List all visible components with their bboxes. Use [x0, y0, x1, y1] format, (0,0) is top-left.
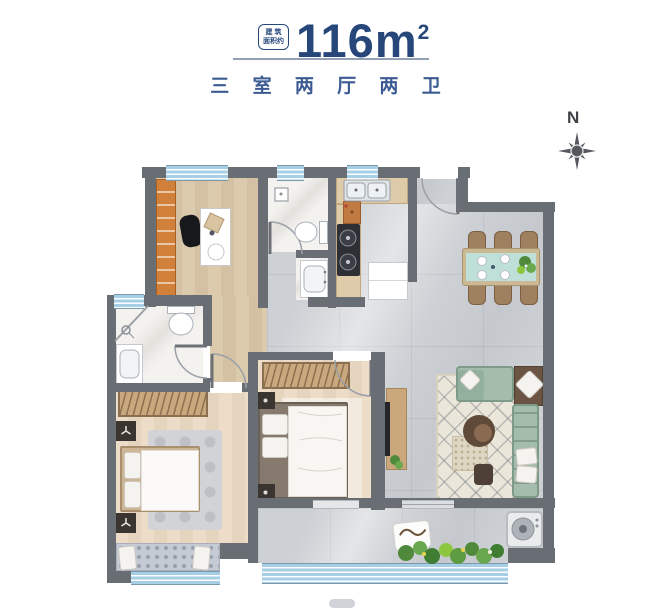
wall	[203, 295, 212, 346]
ottoman-stool	[474, 464, 493, 485]
master-nightstand	[256, 392, 275, 409]
guest-vanity	[300, 260, 328, 298]
kitchen-counter-top	[336, 177, 408, 204]
master-duvet	[288, 406, 347, 497]
armchair-pillow	[515, 447, 538, 466]
bay-pillow	[192, 545, 211, 571]
wall	[371, 352, 385, 510]
pillow	[124, 452, 141, 479]
dining-table-top	[466, 253, 536, 281]
area-badge: 建 筑 面积约	[258, 24, 289, 50]
dining-chair	[494, 283, 512, 305]
dining-chair	[520, 283, 538, 305]
bay-window	[131, 571, 220, 585]
bedroom-door-opening	[210, 382, 242, 393]
layout-subtitle: 三 室 两 厅 两 卫	[205, 71, 455, 98]
bedroom-wardrobe	[118, 390, 208, 417]
master-wardrobe	[262, 362, 350, 389]
floorplan-page: 建 筑 面积约 116m2 三 室 两 厅 两 卫 N	[0, 0, 660, 608]
fridge-seam	[369, 280, 407, 281]
area-badge-line1: 建 筑	[263, 28, 284, 37]
toilet2-tank	[167, 306, 195, 314]
wall	[107, 383, 210, 392]
wall	[220, 543, 258, 559]
balcony-sliding-door	[402, 500, 454, 509]
master-balcony-window	[313, 500, 359, 509]
bookshelf	[156, 179, 176, 298]
wall	[328, 177, 336, 308]
window	[347, 165, 378, 181]
dining-chair	[468, 283, 486, 305]
compass-north-label: N	[567, 108, 579, 128]
wall	[145, 167, 156, 307]
duvet	[141, 450, 199, 511]
area-badge-line2: 面积约	[263, 37, 284, 46]
master-door-opening	[333, 351, 371, 361]
window	[166, 165, 228, 181]
page-pill	[329, 599, 355, 608]
master-pillow	[262, 414, 288, 435]
stove	[337, 224, 360, 276]
area-superscript: 2	[418, 21, 430, 44]
master-vanity	[116, 344, 143, 384]
fridge	[368, 262, 408, 300]
wall	[543, 202, 554, 563]
wall	[508, 548, 555, 563]
header-divider	[233, 58, 429, 60]
wall	[308, 297, 365, 307]
window	[114, 294, 144, 309]
wall	[408, 177, 417, 282]
wall	[296, 250, 328, 258]
washing-machine	[506, 511, 543, 548]
nightstand	[116, 513, 136, 533]
master-pillow	[262, 437, 288, 458]
wall	[107, 295, 116, 583]
balcony-window	[262, 563, 508, 584]
entry-opening	[420, 166, 458, 179]
balcony-floor	[258, 508, 543, 563]
armchair-pillow	[515, 465, 537, 484]
nightstand	[116, 421, 136, 441]
bay-pillow	[118, 545, 137, 571]
wall	[248, 352, 333, 360]
wall	[248, 352, 258, 563]
tv	[385, 402, 390, 456]
wall	[107, 571, 133, 583]
wall	[258, 177, 268, 308]
compass-rose	[558, 132, 596, 170]
cutting-board	[343, 201, 361, 224]
window	[277, 165, 304, 181]
wall	[456, 202, 555, 212]
pillow	[124, 481, 141, 508]
toilet-tank	[319, 221, 328, 244]
